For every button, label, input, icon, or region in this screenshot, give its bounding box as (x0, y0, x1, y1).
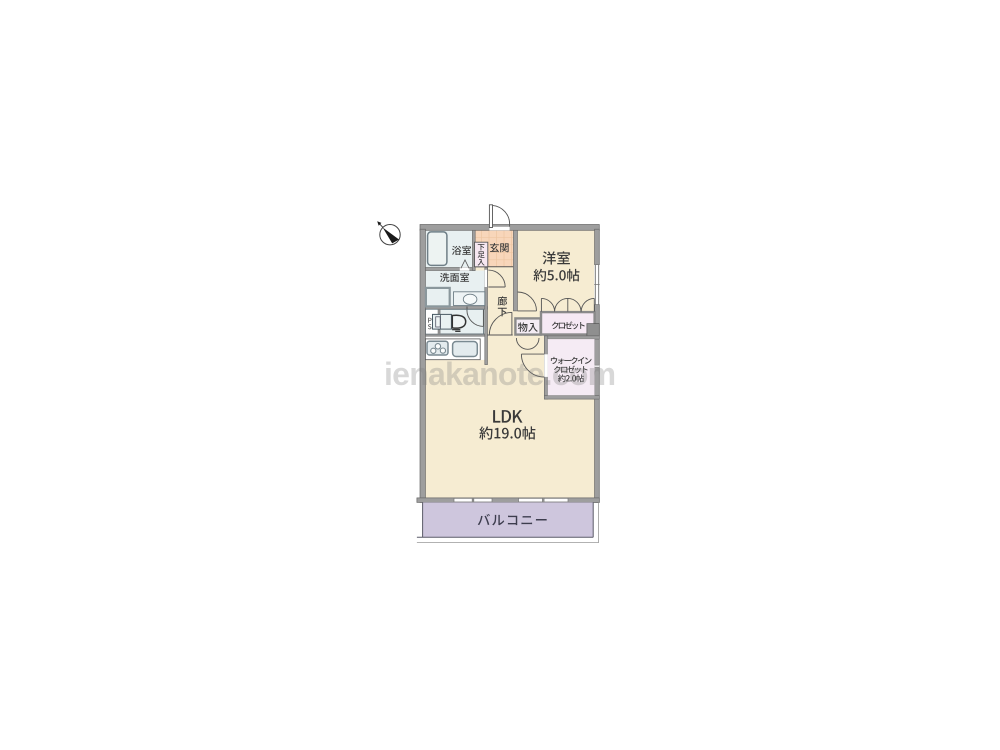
svg-text:ienakanote.com: ienakanote.com (384, 356, 615, 392)
